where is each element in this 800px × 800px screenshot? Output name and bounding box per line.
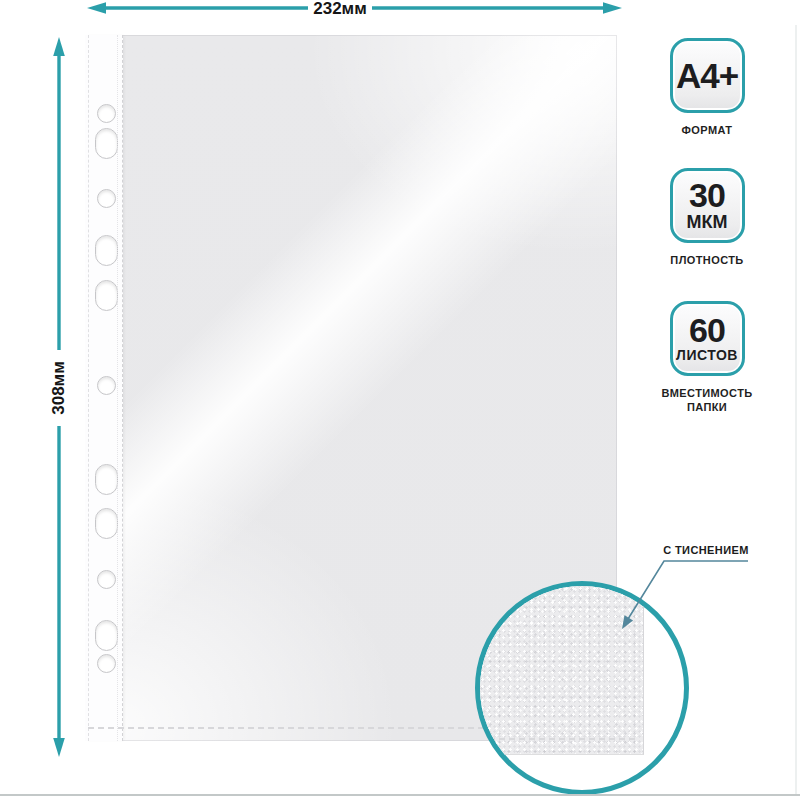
- badge-format-value: A4+: [676, 58, 738, 93]
- badge-capacity: 60 ЛИСТОВ ВМЕСТИМОСТЬ ПАПКИ: [652, 301, 762, 415]
- badge-density-box: 30 МКМ: [670, 168, 745, 243]
- width-dimension-label: 232мм: [281, 1, 399, 17]
- badge-capacity-unit: ЛИСТОВ: [676, 348, 738, 363]
- magnified-bottom-seam: [475, 738, 635, 740]
- punch-hole: [95, 235, 118, 266]
- punch-hole: [97, 654, 116, 673]
- punch-strip: [85, 35, 123, 741]
- punch-hole: [97, 570, 116, 589]
- product-infographic: { "colors": { "accent": "#2b9faa", "call…: [0, 0, 800, 800]
- punch-hole: [97, 376, 116, 395]
- punch-hole: [97, 189, 116, 208]
- arrow-down-head-icon: [53, 738, 65, 757]
- badge-density-caption: ПЛОТНОСТЬ: [652, 253, 762, 267]
- badge-density-value: 30: [689, 178, 725, 212]
- punch-hole: [95, 620, 118, 651]
- punch-hole: [97, 104, 116, 123]
- punch-hole: [95, 464, 118, 495]
- badge-capacity-value: 60: [689, 313, 725, 347]
- punch-hole: [95, 280, 118, 311]
- badge-capacity-box: 60 ЛИСТОВ: [670, 301, 745, 376]
- arrow-right-head-icon: [603, 2, 622, 14]
- punch-hole: [95, 508, 118, 539]
- height-dimension-label: 308мм: [49, 328, 69, 448]
- arrow-up-head-icon: [53, 37, 65, 56]
- badge-density-unit: МКМ: [687, 213, 728, 233]
- embossing-callout-label: С ТИСНЕНИЕМ: [662, 544, 750, 556]
- badge-format-caption: ФОРМАТ: [652, 123, 762, 137]
- photo-right-edge: [795, 25, 797, 795]
- punch-hole: [95, 128, 118, 159]
- photo-bottom-edge: [0, 794, 800, 796]
- badge-format: A4+ ФОРМАТ: [652, 38, 762, 137]
- badge-format-box: A4+: [670, 38, 745, 113]
- arrow-left-head-icon: [87, 2, 106, 14]
- badge-capacity-caption: ВМЕСТИМОСТЬ ПАПКИ: [652, 386, 762, 415]
- embossing-magnifier-circle: [475, 581, 689, 795]
- badge-density: 30 МКМ ПЛОТНОСТЬ: [652, 168, 762, 267]
